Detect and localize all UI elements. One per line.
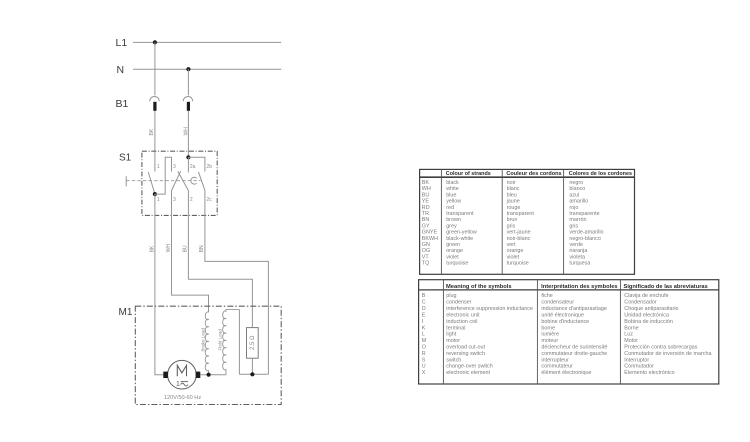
svg-text:S: S (422, 357, 426, 363)
svg-text:inductance d'antiparasitage: inductance d'antiparasitage (541, 306, 606, 312)
svg-text:Elemento electrónico: Elemento electrónico (624, 370, 674, 376)
svg-text:bobine d'inductance: bobine d'inductance (541, 319, 589, 325)
svg-text:Clavija de enchufe: Clavija de enchufe (624, 293, 668, 299)
svg-text:turquesa: turquesa (569, 261, 590, 267)
svg-text:3: 3 (173, 164, 176, 170)
svg-text:bleu: bleu (507, 192, 517, 198)
svg-text:black: black (446, 180, 459, 186)
svg-text:L1: L1 (116, 37, 128, 49)
svg-text:Unidad electrónica: Unidad electrónica (624, 312, 669, 318)
svg-text:negro-blanco: negro-blanco (569, 236, 600, 242)
svg-text:yellow: yellow (446, 199, 461, 205)
svg-text:OG: OG (422, 248, 430, 254)
svg-text:naranja: naranja (569, 248, 587, 254)
svg-text:transparent: transparent (446, 211, 474, 217)
svg-text:Condensador: Condensador (624, 300, 657, 306)
svg-text:Interruptor: Interruptor (624, 357, 649, 363)
svg-text:motor: motor (446, 338, 460, 344)
svg-text:interference suppression induc: interference suppression inductance (446, 306, 533, 312)
svg-text:L: L (422, 332, 425, 338)
svg-text:gris: gris (507, 223, 516, 229)
svg-text:BKWH: BKWH (422, 236, 438, 242)
svg-text:blanc: blanc (507, 186, 520, 192)
svg-text:déclencheur de surintensité: déclencheur de surintensité (541, 345, 607, 351)
svg-text:unité électronique: unité électronique (541, 312, 584, 318)
svg-text:negro: negro (569, 180, 583, 186)
svg-text:rojo: rojo (569, 205, 578, 211)
svg-text:black-white: black-white (446, 236, 473, 242)
svg-text:green-yellow: green-yellow (446, 230, 477, 236)
svg-text:light: light (446, 332, 456, 338)
svg-text:brown: brown (446, 217, 461, 223)
svg-text:change-over switch: change-over switch (446, 364, 492, 370)
svg-text:Luz: Luz (624, 332, 633, 338)
svg-text:overload cut-out: overload cut-out (446, 345, 485, 351)
svg-text:vert-jaune: vert-jaune (507, 230, 531, 236)
svg-text:blanco: blanco (569, 186, 585, 192)
svg-text:electronic unit: electronic unit (446, 312, 480, 318)
svg-text:noir-blanc: noir-blanc (507, 236, 531, 242)
svg-text:transparent: transparent (507, 211, 535, 217)
svg-text:N: N (117, 64, 125, 76)
svg-text:Brake Lead: Brake Lead (200, 328, 205, 352)
svg-text:Conmutador: Conmutador (624, 364, 654, 370)
svg-text:BK: BK (149, 128, 155, 135)
svg-text:I: I (422, 319, 424, 325)
svg-text:Conmutador de inversión de mar: Conmutador de inversión de marcha (624, 351, 711, 357)
svg-text:commutateur: commutateur (541, 364, 573, 370)
svg-text:RD: RD (422, 205, 430, 211)
svg-text:borne: borne (541, 325, 555, 331)
svg-text:verde-amarillo: verde-amarillo (569, 230, 603, 236)
svg-text:green: green (446, 242, 460, 248)
svg-text:white: white (445, 186, 459, 192)
svg-text:rouge: rouge (507, 205, 521, 211)
svg-text:turquoise: turquoise (507, 261, 529, 267)
svg-text:TR: TR (422, 211, 429, 217)
svg-text:BK: BK (150, 245, 156, 252)
svg-text:commutateur droite-gauche: commutateur droite-gauche (541, 351, 607, 357)
svg-text:1: 1 (157, 164, 160, 170)
svg-text:E: E (422, 312, 426, 318)
svg-text:Meaning of the symbols: Meaning of the symbols (446, 284, 512, 290)
svg-text:2a: 2a (190, 164, 196, 170)
svg-text:K: K (422, 325, 426, 331)
svg-text:2: 2 (190, 197, 193, 203)
svg-text:GN: GN (422, 242, 430, 248)
svg-text:R: R (422, 351, 426, 357)
svg-text:azul: azul (569, 192, 579, 198)
svg-text:U: U (422, 364, 426, 370)
svg-text:Protección contra sobrecargas: Protección contra sobrecargas (624, 345, 697, 351)
svg-text:Colores de los cordones: Colores de los cordones (569, 171, 632, 177)
svg-text:vert: vert (507, 242, 516, 248)
svg-text:2c: 2c (207, 197, 213, 203)
svg-text:120V/50-60 Hz: 120V/50-60 Hz (164, 395, 202, 401)
svg-text:C: C (422, 300, 426, 306)
svg-text:Choque antiparasitario: Choque antiparasitario (624, 306, 678, 312)
svg-text:BN: BN (199, 245, 205, 252)
svg-text:orange: orange (446, 248, 463, 254)
svg-text:Significado de las abreviatura: Significado de las abreviaturas (624, 284, 708, 290)
svg-text:Colour of strands: Colour of strands (446, 171, 491, 177)
svg-text:1: 1 (176, 379, 180, 388)
svg-text:terminal: terminal (446, 325, 465, 331)
svg-text:verde: verde (569, 242, 583, 248)
svg-text:D: D (422, 306, 426, 312)
svg-text:violet: violet (446, 254, 459, 260)
svg-text:induction coil: induction coil (446, 319, 477, 325)
svg-text:condenser: condenser (446, 300, 471, 306)
svg-text:GY: GY (422, 223, 430, 229)
svg-text:BU: BU (422, 192, 430, 198)
svg-text:WH: WH (166, 244, 172, 253)
svg-text:BK: BK (422, 180, 430, 186)
svg-text:jaune: jaune (506, 199, 520, 205)
svg-text:M1: M1 (119, 307, 133, 318)
svg-text:red: red (446, 205, 454, 211)
svg-text:grey: grey (446, 223, 457, 229)
svg-text:B: B (422, 293, 426, 299)
svg-text:Motor: Motor (624, 338, 638, 344)
svg-text:TQ: TQ (422, 261, 430, 267)
svg-text:BU: BU (183, 245, 189, 252)
svg-text:lumière: lumière (541, 332, 559, 338)
svg-text:reversing switch: reversing switch (446, 351, 485, 357)
svg-text:Bobina de inducción: Bobina de inducción (624, 319, 673, 325)
svg-text:fiche: fiche (541, 293, 552, 299)
svg-text:2b: 2b (207, 164, 213, 170)
svg-text:Interprétation des symboles: Interprétation des symboles (541, 284, 617, 290)
svg-text:2.5 Ω: 2.5 Ω (250, 335, 256, 350)
svg-text:YE: YE (422, 199, 430, 205)
svg-text:Couleur des cordons: Couleur des cordons (506, 171, 561, 177)
svg-text:condensateur: condensateur (541, 300, 574, 306)
svg-text:B1: B1 (116, 98, 129, 110)
svg-text:GNYE: GNYE (422, 230, 438, 236)
svg-text:blue: blue (446, 192, 456, 198)
svg-text:O: O (422, 345, 426, 351)
svg-text:BN: BN (422, 217, 430, 223)
svg-text:electronic element: electronic element (446, 370, 490, 376)
svg-text:orange: orange (507, 248, 524, 254)
svg-text:plug: plug (446, 293, 456, 299)
svg-text:élément électronique: élément électronique (541, 370, 591, 376)
svg-text:1: 1 (157, 197, 160, 203)
svg-text:violeta: violeta (569, 254, 585, 260)
svg-text:S1: S1 (119, 153, 132, 164)
svg-text:gris: gris (569, 223, 578, 229)
svg-text:interrupteur: interrupteur (541, 357, 569, 363)
svg-text:turquoise: turquoise (446, 261, 468, 267)
svg-text:brun: brun (507, 217, 518, 223)
svg-text:amarillo: amarillo (569, 199, 588, 205)
svg-text:violet: violet (507, 254, 520, 260)
svg-text:marrón: marrón (569, 217, 586, 223)
svg-text:switch: switch (446, 357, 461, 363)
svg-text:Field Lead: Field Lead (217, 329, 222, 351)
svg-text:VT: VT (422, 254, 430, 260)
svg-text:WH: WH (422, 186, 431, 192)
svg-text:noir: noir (507, 180, 516, 186)
svg-text:M: M (422, 338, 427, 344)
svg-text:Borne: Borne (624, 325, 638, 331)
svg-text:X: X (422, 370, 426, 376)
svg-text:moteur: moteur (541, 338, 558, 344)
svg-text:transparente: transparente (569, 211, 599, 217)
svg-text:WH: WH (184, 127, 190, 136)
svg-text:3: 3 (173, 197, 176, 203)
